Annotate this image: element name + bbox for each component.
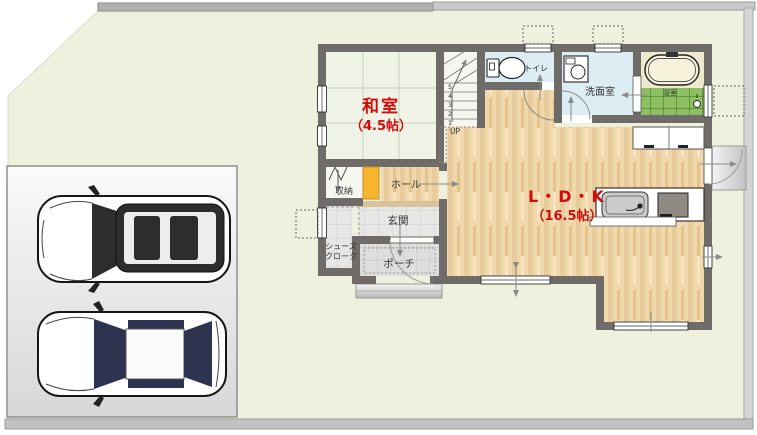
car-suv bbox=[38, 185, 230, 293]
senmen-door-gap bbox=[562, 115, 592, 123]
hall-label: ホール bbox=[391, 179, 421, 191]
stove-icon bbox=[658, 193, 688, 217]
washitsu-sliding-door-orange bbox=[363, 167, 379, 199]
site-plan-screenshot: 5 4 3 2 1 UP bbox=[0, 0, 757, 435]
toilet-icon bbox=[487, 58, 525, 79]
washitsu-label: 和室 bbox=[362, 96, 400, 117]
washing-machine-icon bbox=[564, 56, 588, 82]
parking-area bbox=[7, 166, 237, 417]
stair-number: 5 bbox=[448, 83, 452, 91]
agarikamachi-step bbox=[359, 201, 439, 207]
entrance-door-leaf bbox=[390, 237, 434, 243]
car-sedan bbox=[38, 301, 226, 407]
fence-top-right bbox=[433, 2, 755, 10]
washitsu-size: （4.5帖） bbox=[350, 118, 412, 134]
genkan-label: 玄関 bbox=[388, 214, 409, 227]
stair-number: 3 bbox=[448, 101, 452, 109]
kitchen-door-landing bbox=[712, 146, 746, 190]
ldk-label: L・D・K bbox=[528, 187, 606, 206]
corridor-floor bbox=[485, 90, 554, 127]
stair-number: 4 bbox=[448, 92, 452, 100]
room-ldk-floor-lower bbox=[604, 276, 704, 322]
kitchen-upper-cabinet bbox=[633, 127, 704, 149]
kitchen-counter bbox=[590, 188, 704, 226]
senmen-label: 洗面室 bbox=[585, 85, 615, 98]
shoes-cloak-label-2: クローク bbox=[325, 252, 357, 261]
fence-bottom bbox=[5, 419, 753, 429]
bath-label: 浴室 bbox=[663, 88, 677, 97]
shoes-cloak-label-1: シューズ bbox=[325, 241, 357, 251]
porch-label: ポーチ bbox=[383, 258, 415, 270]
ldk-size: （16.5帖） bbox=[531, 208, 602, 224]
site-plan-canvas: 5 4 3 2 1 UP bbox=[0, 0, 757, 435]
fence-top-left bbox=[98, 3, 433, 11]
storage-label: 収納 bbox=[335, 185, 353, 197]
bath-sliding-door bbox=[633, 76, 641, 112]
stair-number: 1 bbox=[448, 119, 452, 127]
toilet-label: トイレ bbox=[524, 64, 548, 73]
bathtub-icon bbox=[645, 52, 699, 85]
toilet-door-gap bbox=[542, 82, 554, 90]
kitchen-door-leaf bbox=[704, 148, 712, 184]
stair-number: 2 bbox=[448, 110, 452, 118]
fence-right bbox=[744, 8, 753, 421]
stairs-up-label: UP bbox=[450, 127, 460, 136]
